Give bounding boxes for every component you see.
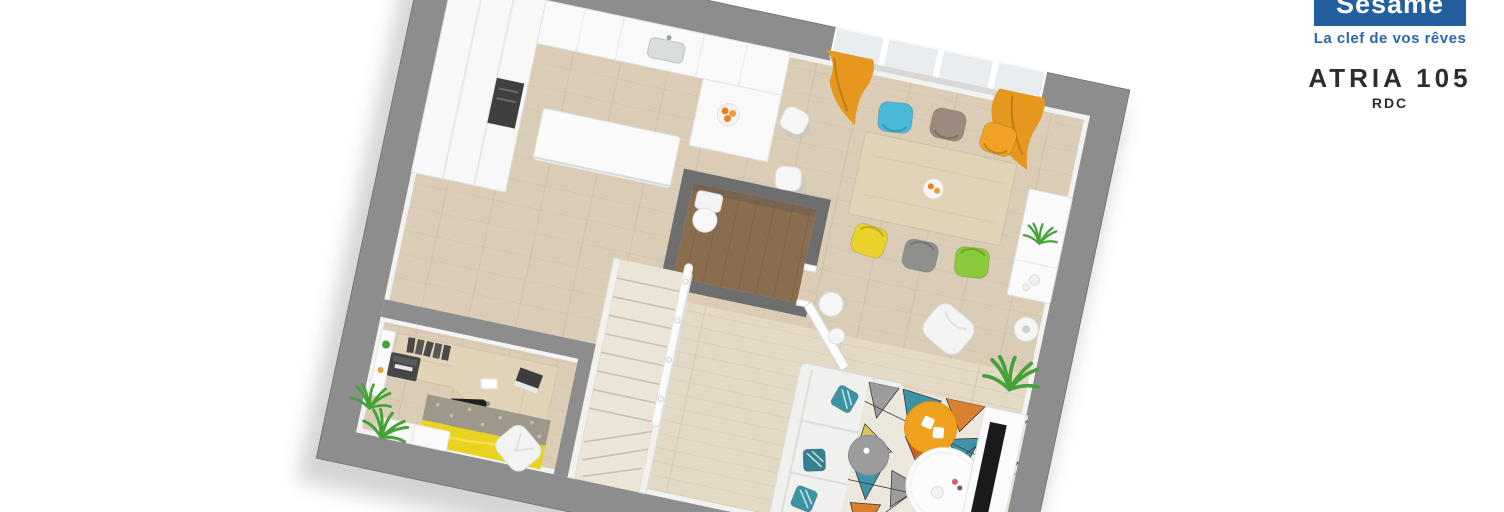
sofa-pillow xyxy=(803,449,826,472)
page: Sésame La clef de vos rêves ATRIA 105 RD… xyxy=(0,0,1504,512)
plan-title: ATRIA 105 xyxy=(1278,63,1502,94)
brand-logo-text: Sésame xyxy=(1336,0,1444,20)
brand-tagline: La clef de vos rêves xyxy=(1278,30,1502,47)
plan-floor-label: RDC xyxy=(1278,95,1502,111)
plan-3d xyxy=(316,0,1130,512)
brand-logo: Sésame xyxy=(1314,0,1466,26)
dining-chair-green xyxy=(953,246,990,279)
paper-sheet xyxy=(481,379,497,389)
dining-chair-cyan xyxy=(877,101,914,134)
brand-block: Sésame La clef de vos rêves ATRIA 105 RD… xyxy=(1278,0,1502,111)
